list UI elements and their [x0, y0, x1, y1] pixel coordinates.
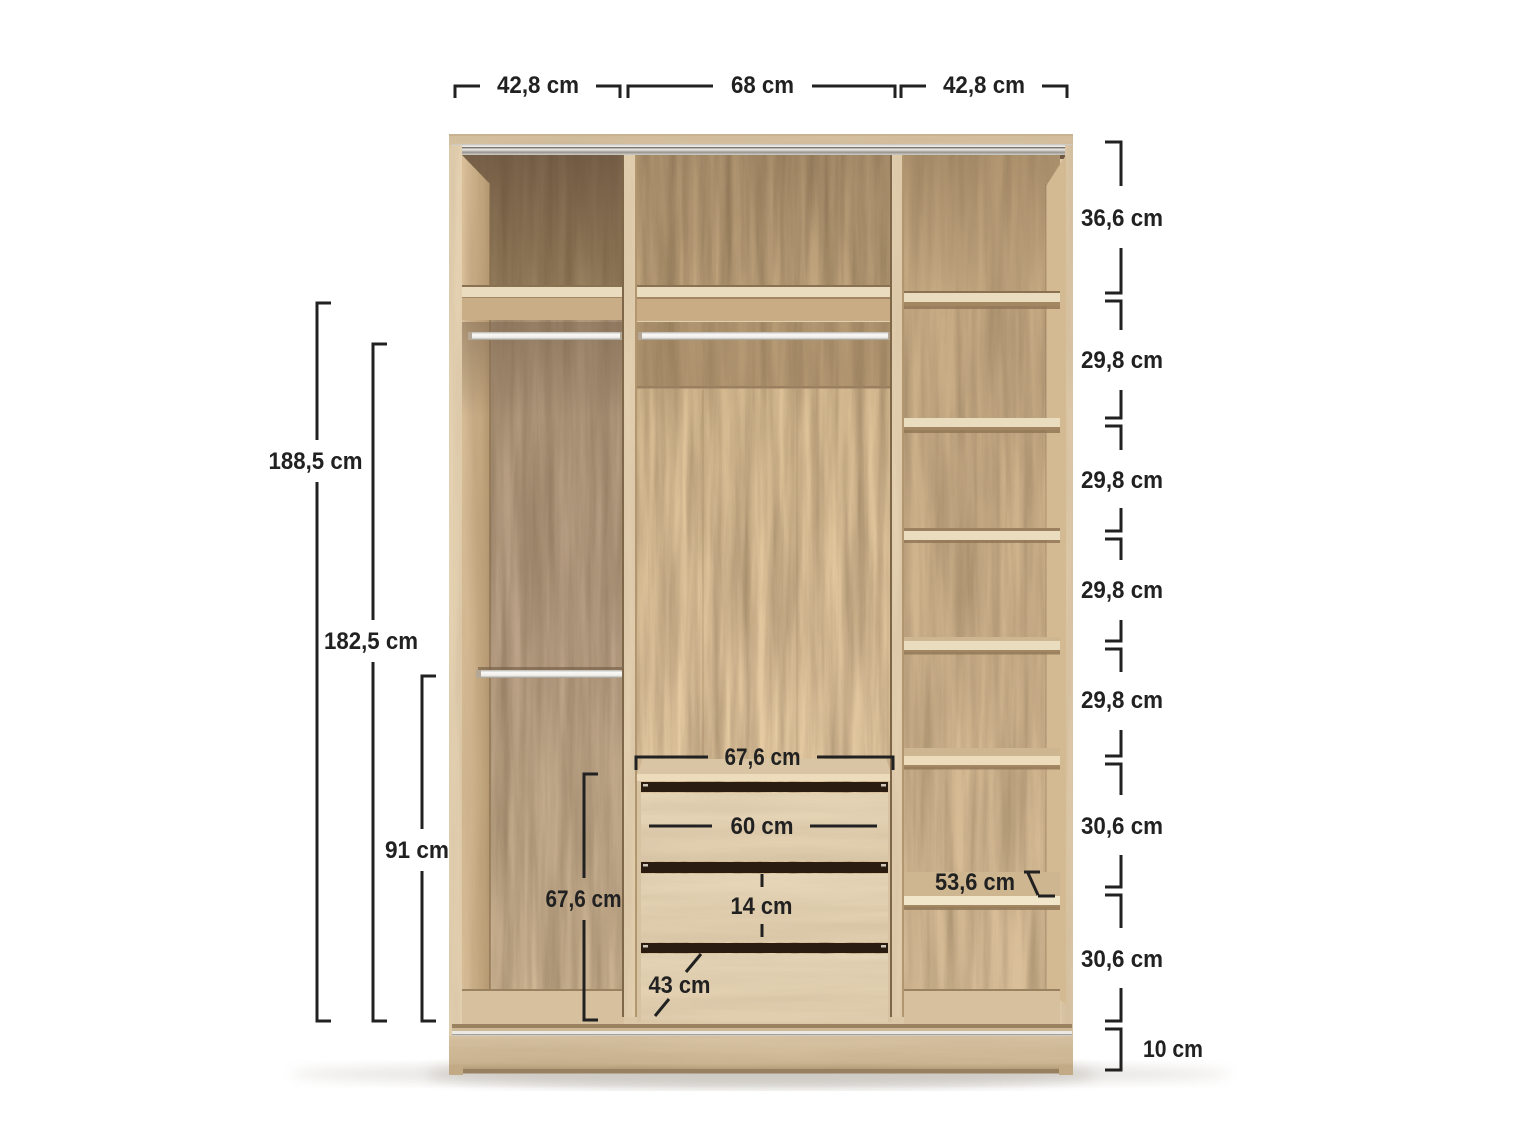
- svg-text:67,6 cm: 67,6 cm: [725, 744, 801, 771]
- svg-text:10 cm: 10 cm: [1143, 1036, 1203, 1063]
- svg-text:36,6 cm: 36,6 cm: [1081, 205, 1163, 232]
- svg-text:91 cm: 91 cm: [385, 837, 449, 864]
- svg-text:188,5 cm: 188,5 cm: [269, 448, 363, 475]
- svg-text:42,8 cm: 42,8 cm: [943, 72, 1025, 99]
- svg-text:68 cm: 68 cm: [731, 72, 794, 99]
- svg-text:29,8 cm: 29,8 cm: [1081, 467, 1163, 494]
- svg-text:30,6 cm: 30,6 cm: [1081, 946, 1163, 973]
- svg-text:67,6 cm: 67,6 cm: [546, 886, 622, 913]
- svg-text:42,8 cm: 42,8 cm: [497, 72, 579, 99]
- svg-text:43 cm: 43 cm: [649, 972, 711, 999]
- svg-text:29,8 cm: 29,8 cm: [1081, 687, 1163, 714]
- svg-text:29,8 cm: 29,8 cm: [1081, 347, 1163, 374]
- svg-text:30,6 cm: 30,6 cm: [1081, 813, 1163, 840]
- svg-text:29,8 cm: 29,8 cm: [1081, 577, 1163, 604]
- svg-text:14 cm: 14 cm: [731, 893, 793, 920]
- svg-text:182,5 cm: 182,5 cm: [324, 628, 418, 655]
- svg-text:53,6 cm: 53,6 cm: [935, 869, 1015, 896]
- svg-text:60 cm: 60 cm: [731, 813, 794, 840]
